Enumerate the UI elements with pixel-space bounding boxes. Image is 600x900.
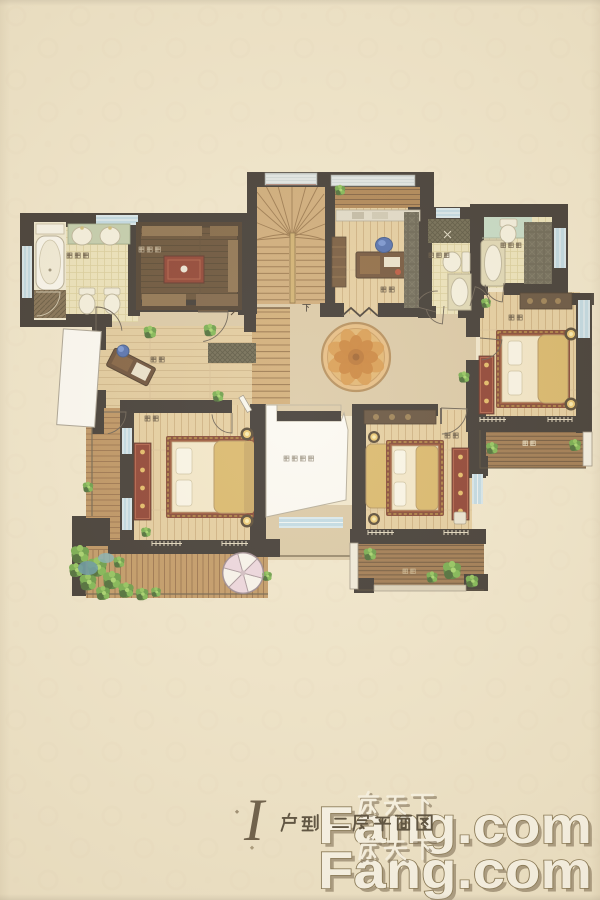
svg-text:Fang.com: Fang.com bbox=[318, 842, 592, 900]
svg-text:I: I bbox=[243, 787, 267, 853]
